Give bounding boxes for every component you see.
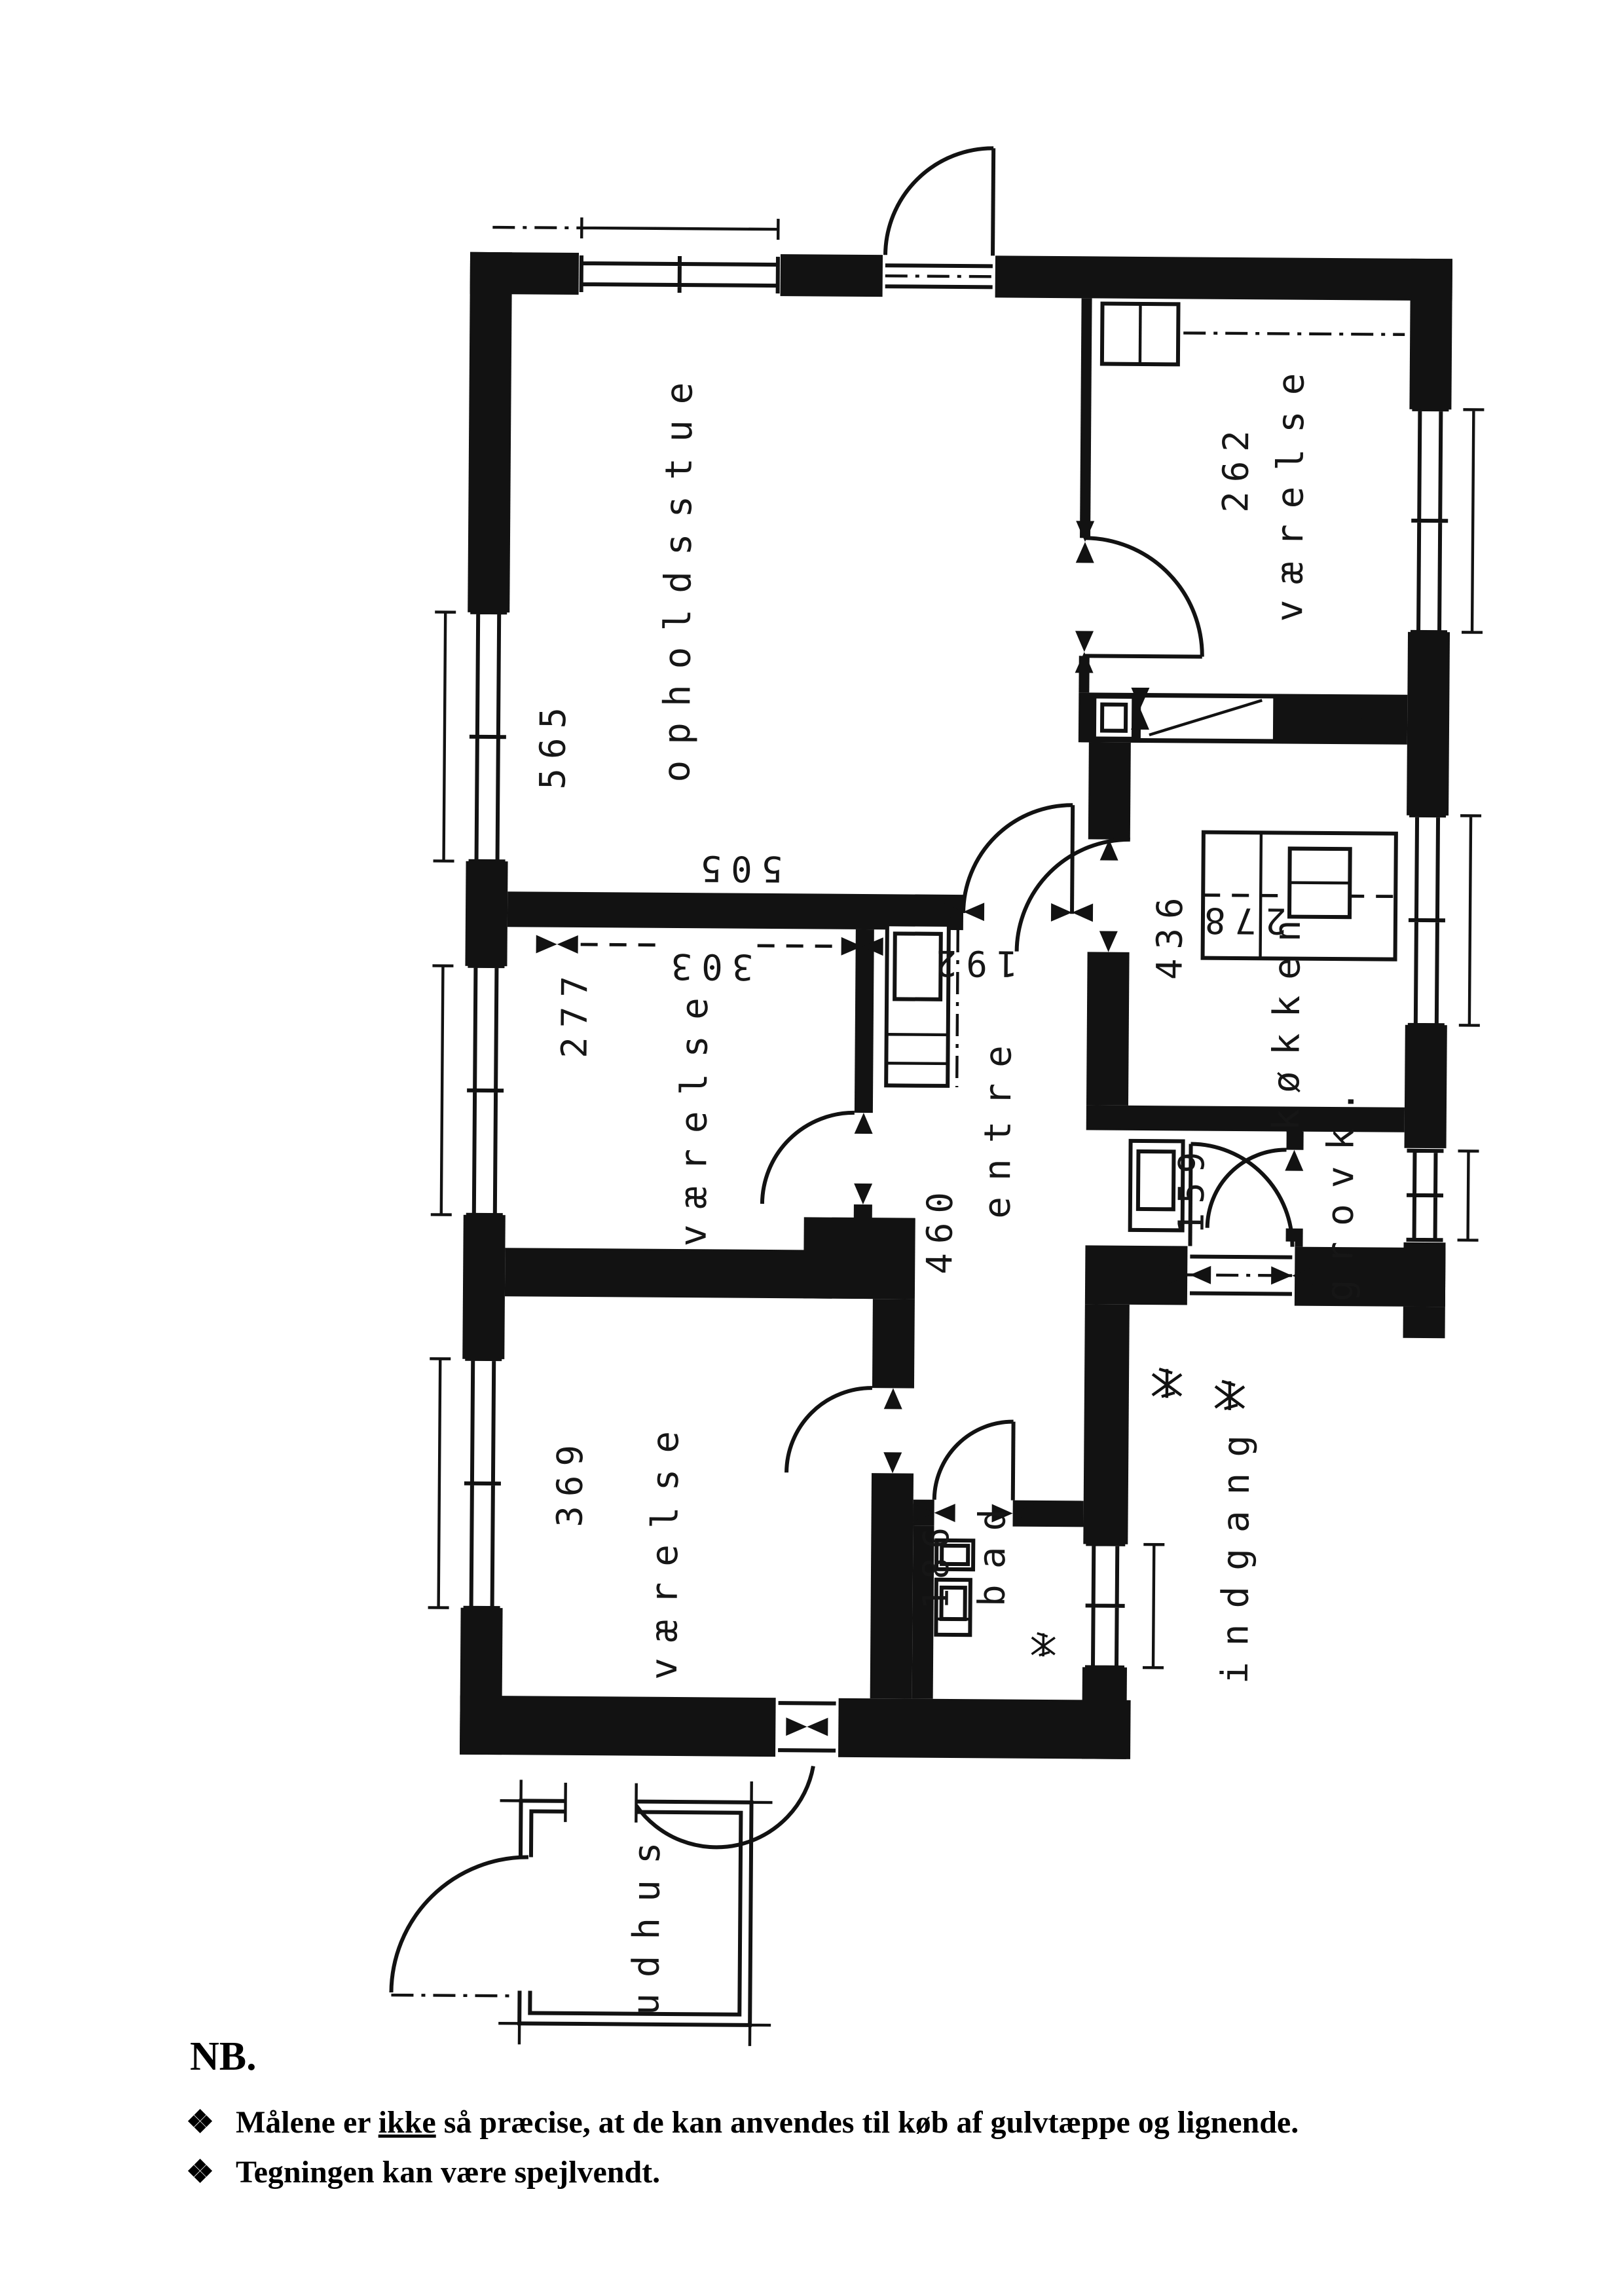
dim-369: 369 [549, 1436, 591, 1527]
dim-192: 192 [926, 942, 1018, 984]
notes-heading: NB. [190, 2034, 257, 2079]
scanned-page: opholdsstue 565 505 262 værelse 278 436 … [0, 0, 1624, 2295]
label-opholdsstue: opholdsstue [655, 366, 701, 782]
label-vaerelse-sw: værelse [643, 1415, 688, 1680]
bad-floor-drain [1031, 1633, 1054, 1656]
door-bad [934, 1421, 1014, 1501]
wall-right-endcap [1403, 1307, 1445, 1338]
label-indgang: indgang [1214, 1419, 1259, 1684]
note2-text: Tegningen kan være spejlvendt. [236, 2155, 660, 2190]
dim-186: 186 [915, 1518, 957, 1610]
door-vaerelse-sw [786, 1387, 872, 1473]
label-vaerelse-mid: værelse [672, 982, 716, 1246]
dim-262: 262 [1215, 421, 1257, 513]
udhus-shed [391, 1779, 773, 2046]
floor-plan-drawing: opholdsstue 565 505 262 værelse 278 436 … [0, 0, 1624, 2295]
shrub-icon [1215, 1381, 1244, 1410]
label-vaerelse-ne: værelse [1268, 357, 1313, 622]
label-grovk: grovk. [1319, 1075, 1363, 1302]
label-bad: bad [971, 1493, 1014, 1607]
wall-bad-east [1082, 1304, 1130, 1759]
note2-bullet: ❖ [186, 2155, 214, 2190]
room-labels: opholdsstue 565 505 262 værelse 278 436 … [523, 352, 1368, 2020]
note1-text: Målene er ikke så præcise, at de kan anv… [236, 2105, 1299, 2140]
partition-vaerelse-mid-a [855, 929, 874, 1113]
dim-460: 460 [919, 1183, 961, 1275]
door-vaerelse-ne [1084, 538, 1203, 656]
dim-565: 565 [532, 698, 574, 790]
partition-vaerelse-ne-a [1080, 298, 1092, 538]
shrub-icon [1153, 1369, 1181, 1398]
wall-corridor-west-b [870, 1473, 913, 1698]
door-vaerelse-mid [762, 1112, 855, 1204]
house-plan: opholdsstue 565 505 262 værelse 278 436 … [391, 144, 1486, 2051]
notes-block: NB. ❖ Målene er ikke så præcise, at de k… [186, 2034, 1299, 2190]
door-terrace [885, 147, 993, 287]
dim-505: 505 [691, 848, 783, 889]
dim-159: 159 [1171, 1143, 1213, 1235]
dim-436: 436 [1149, 888, 1190, 980]
label-entre: entre [976, 1030, 1020, 1219]
door-stue [963, 804, 1073, 914]
wall-kitchen-west-b [1086, 952, 1130, 1105]
label-koekken: køkken [1265, 904, 1309, 1131]
label-udhus: udhus [625, 1826, 669, 2015]
dim-277: 277 [553, 967, 595, 1058]
closet-vaerelse-ne [1102, 304, 1405, 366]
note1-bullet: ❖ [186, 2105, 214, 2140]
